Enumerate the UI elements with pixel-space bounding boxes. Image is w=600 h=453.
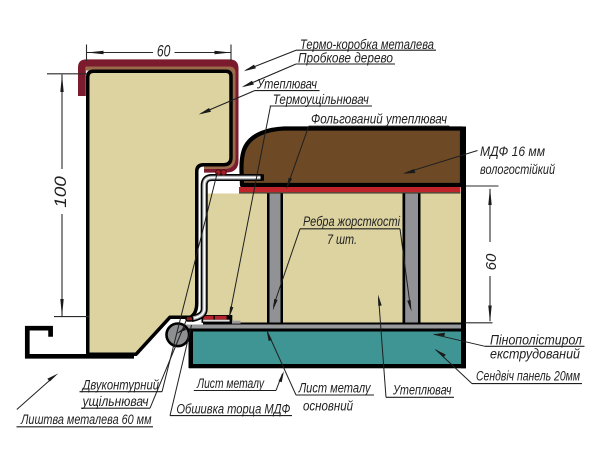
svg-text:7 шт.: 7 шт. bbox=[327, 232, 357, 248]
svg-text:екструдований: екструдований bbox=[490, 346, 580, 362]
svg-text:Утеплювач: Утеплювач bbox=[392, 383, 452, 399]
svg-text:основний: основний bbox=[303, 399, 353, 415]
svg-text:Лист металу: Лист металу bbox=[298, 381, 371, 397]
svg-text:Ребра жорсткості: Ребра жорсткості bbox=[303, 214, 401, 230]
svg-text:Фольгований утеплювач: Фольгований утеплювач bbox=[311, 111, 448, 127]
svg-text:вологостійкий: вологостійкий bbox=[480, 162, 555, 178]
svg-text:ущільнювач: ущільнювач bbox=[82, 394, 149, 410]
svg-text:100: 100 bbox=[52, 175, 70, 207]
svg-text:Лиштва металева 60 мм: Лиштва металева 60 мм bbox=[20, 412, 151, 428]
svg-text:Обшивка торца МДФ: Обшивка торца МДФ bbox=[176, 401, 290, 417]
svg-text:МДФ 16 мм: МДФ 16 мм bbox=[480, 144, 545, 160]
svg-text:Сендвіч панель 20мм: Сендвіч панель 20мм bbox=[476, 369, 580, 385]
svg-text:60: 60 bbox=[157, 43, 171, 61]
svg-text:Лист металу: Лист металу bbox=[196, 376, 264, 392]
svg-text:60: 60 bbox=[483, 253, 500, 270]
